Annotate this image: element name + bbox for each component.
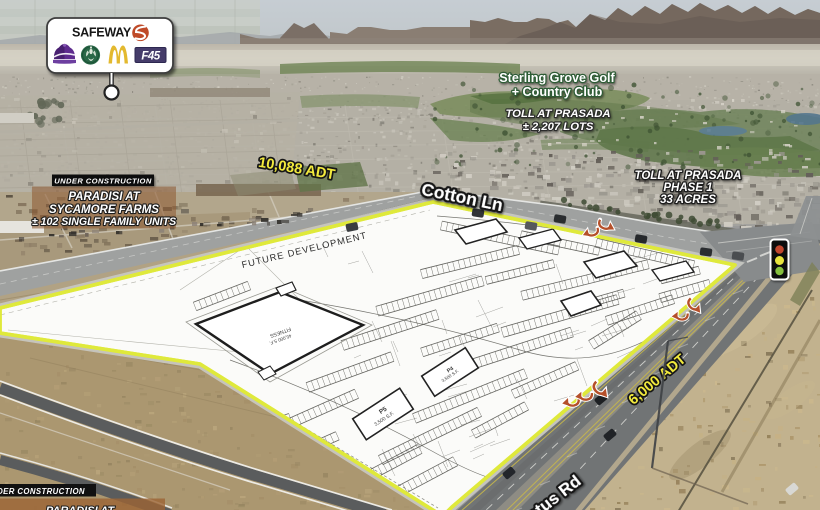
svg-text:+ Country Club: + Country Club (512, 85, 603, 99)
svg-text:± 102 SINGLE FAMILY UNITS: ± 102 SINGLE FAMILY UNITS (32, 216, 176, 228)
svg-text:F45: F45 (141, 50, 160, 62)
svg-text:SYCAMORE FARMS: SYCAMORE FARMS (49, 204, 159, 216)
svg-text:UNDER CONSTRUCTION: UNDER CONSTRUCTION (0, 487, 85, 496)
svg-text:± 2,207 LOTS: ± 2,207 LOTS (523, 121, 594, 133)
svg-text:TOLL AT PRASADA: TOLL AT PRASADA (505, 108, 610, 120)
svg-text:PARADISI AT: PARADISI AT (46, 505, 116, 510)
svg-text:PARADISI AT: PARADISI AT (68, 191, 140, 203)
svg-text:Sterling Grove Golf: Sterling Grove Golf (499, 71, 615, 85)
svg-text:SAFEWAY: SAFEWAY (72, 26, 132, 40)
svg-text:PHASE 1: PHASE 1 (663, 182, 712, 194)
svg-text:TOLL AT PRASADA: TOLL AT PRASADA (635, 170, 742, 182)
svg-text:UNDER CONSTRUCTION: UNDER CONSTRUCTION (54, 177, 152, 186)
svg-text:33 ACRES: 33 ACRES (660, 194, 716, 206)
